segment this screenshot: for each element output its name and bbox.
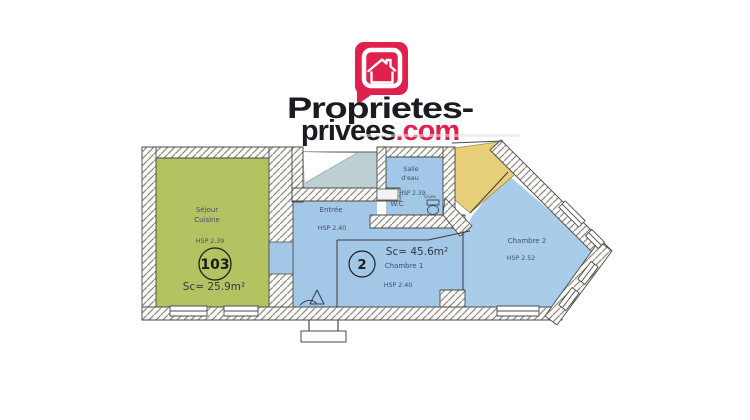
sejour-area-label: Sc= 25.9m² [183, 281, 245, 293]
floorplan-canvas: Proprietes- privees.com [0, 0, 750, 420]
gaine-label: Gaine [424, 194, 436, 199]
entree-label: Entrée [320, 206, 343, 214]
wall-pillar [440, 290, 465, 307]
chambre2-hsp-label: HSP 2.52 [507, 255, 536, 262]
chambre2-label: Chambre 2 [508, 237, 547, 245]
floorplan-screenshot: Proprietes- privees.com [0, 0, 750, 420]
salle-eau-hsp-label: HSP 2.39 [399, 191, 426, 197]
sejour-label: Séjour [196, 206, 218, 214]
wc-label: W.C [390, 200, 403, 208]
floor-plan: Séjour Cuisine HSP 2.39 103 Sc= 25.9m² E… [142, 140, 612, 342]
sejour-lot-number: 103 [200, 257, 229, 273]
brand-name-line2: privees.com [301, 115, 459, 147]
sejour-hsp-label: HSP 2.39 [196, 238, 225, 245]
brand-logo: Proprietes- privees.com [287, 42, 473, 147]
window [224, 306, 258, 316]
door-salle-eau [377, 189, 398, 200]
wall-segment [142, 147, 156, 320]
chambre1-hsp-label: HSP 2.40 [384, 282, 413, 289]
salle-eau-label: Salle [403, 166, 418, 173]
stairwell-area [303, 152, 386, 189]
brand-name-dark: privees [301, 115, 396, 147]
salle-eau-label2: d'eau [401, 175, 418, 182]
wall-segment [269, 147, 293, 307]
entrance-porch [301, 320, 346, 342]
window [170, 306, 207, 316]
door-sejour-entree [269, 242, 293, 274]
window [497, 306, 539, 316]
room-entree [292, 200, 377, 307]
entree-hsp-label: HSP 2.40 [318, 225, 347, 232]
cuisine-label: Cuisine [194, 216, 220, 224]
chambre1-lot-number: 2 [357, 258, 366, 273]
chambre1-label: Chambre 1 [385, 262, 424, 270]
brand-name-accent: .com [395, 115, 459, 147]
scan-artifact [360, 134, 520, 137]
chambre1-area-label: Sc= 45.6m² [386, 246, 448, 258]
